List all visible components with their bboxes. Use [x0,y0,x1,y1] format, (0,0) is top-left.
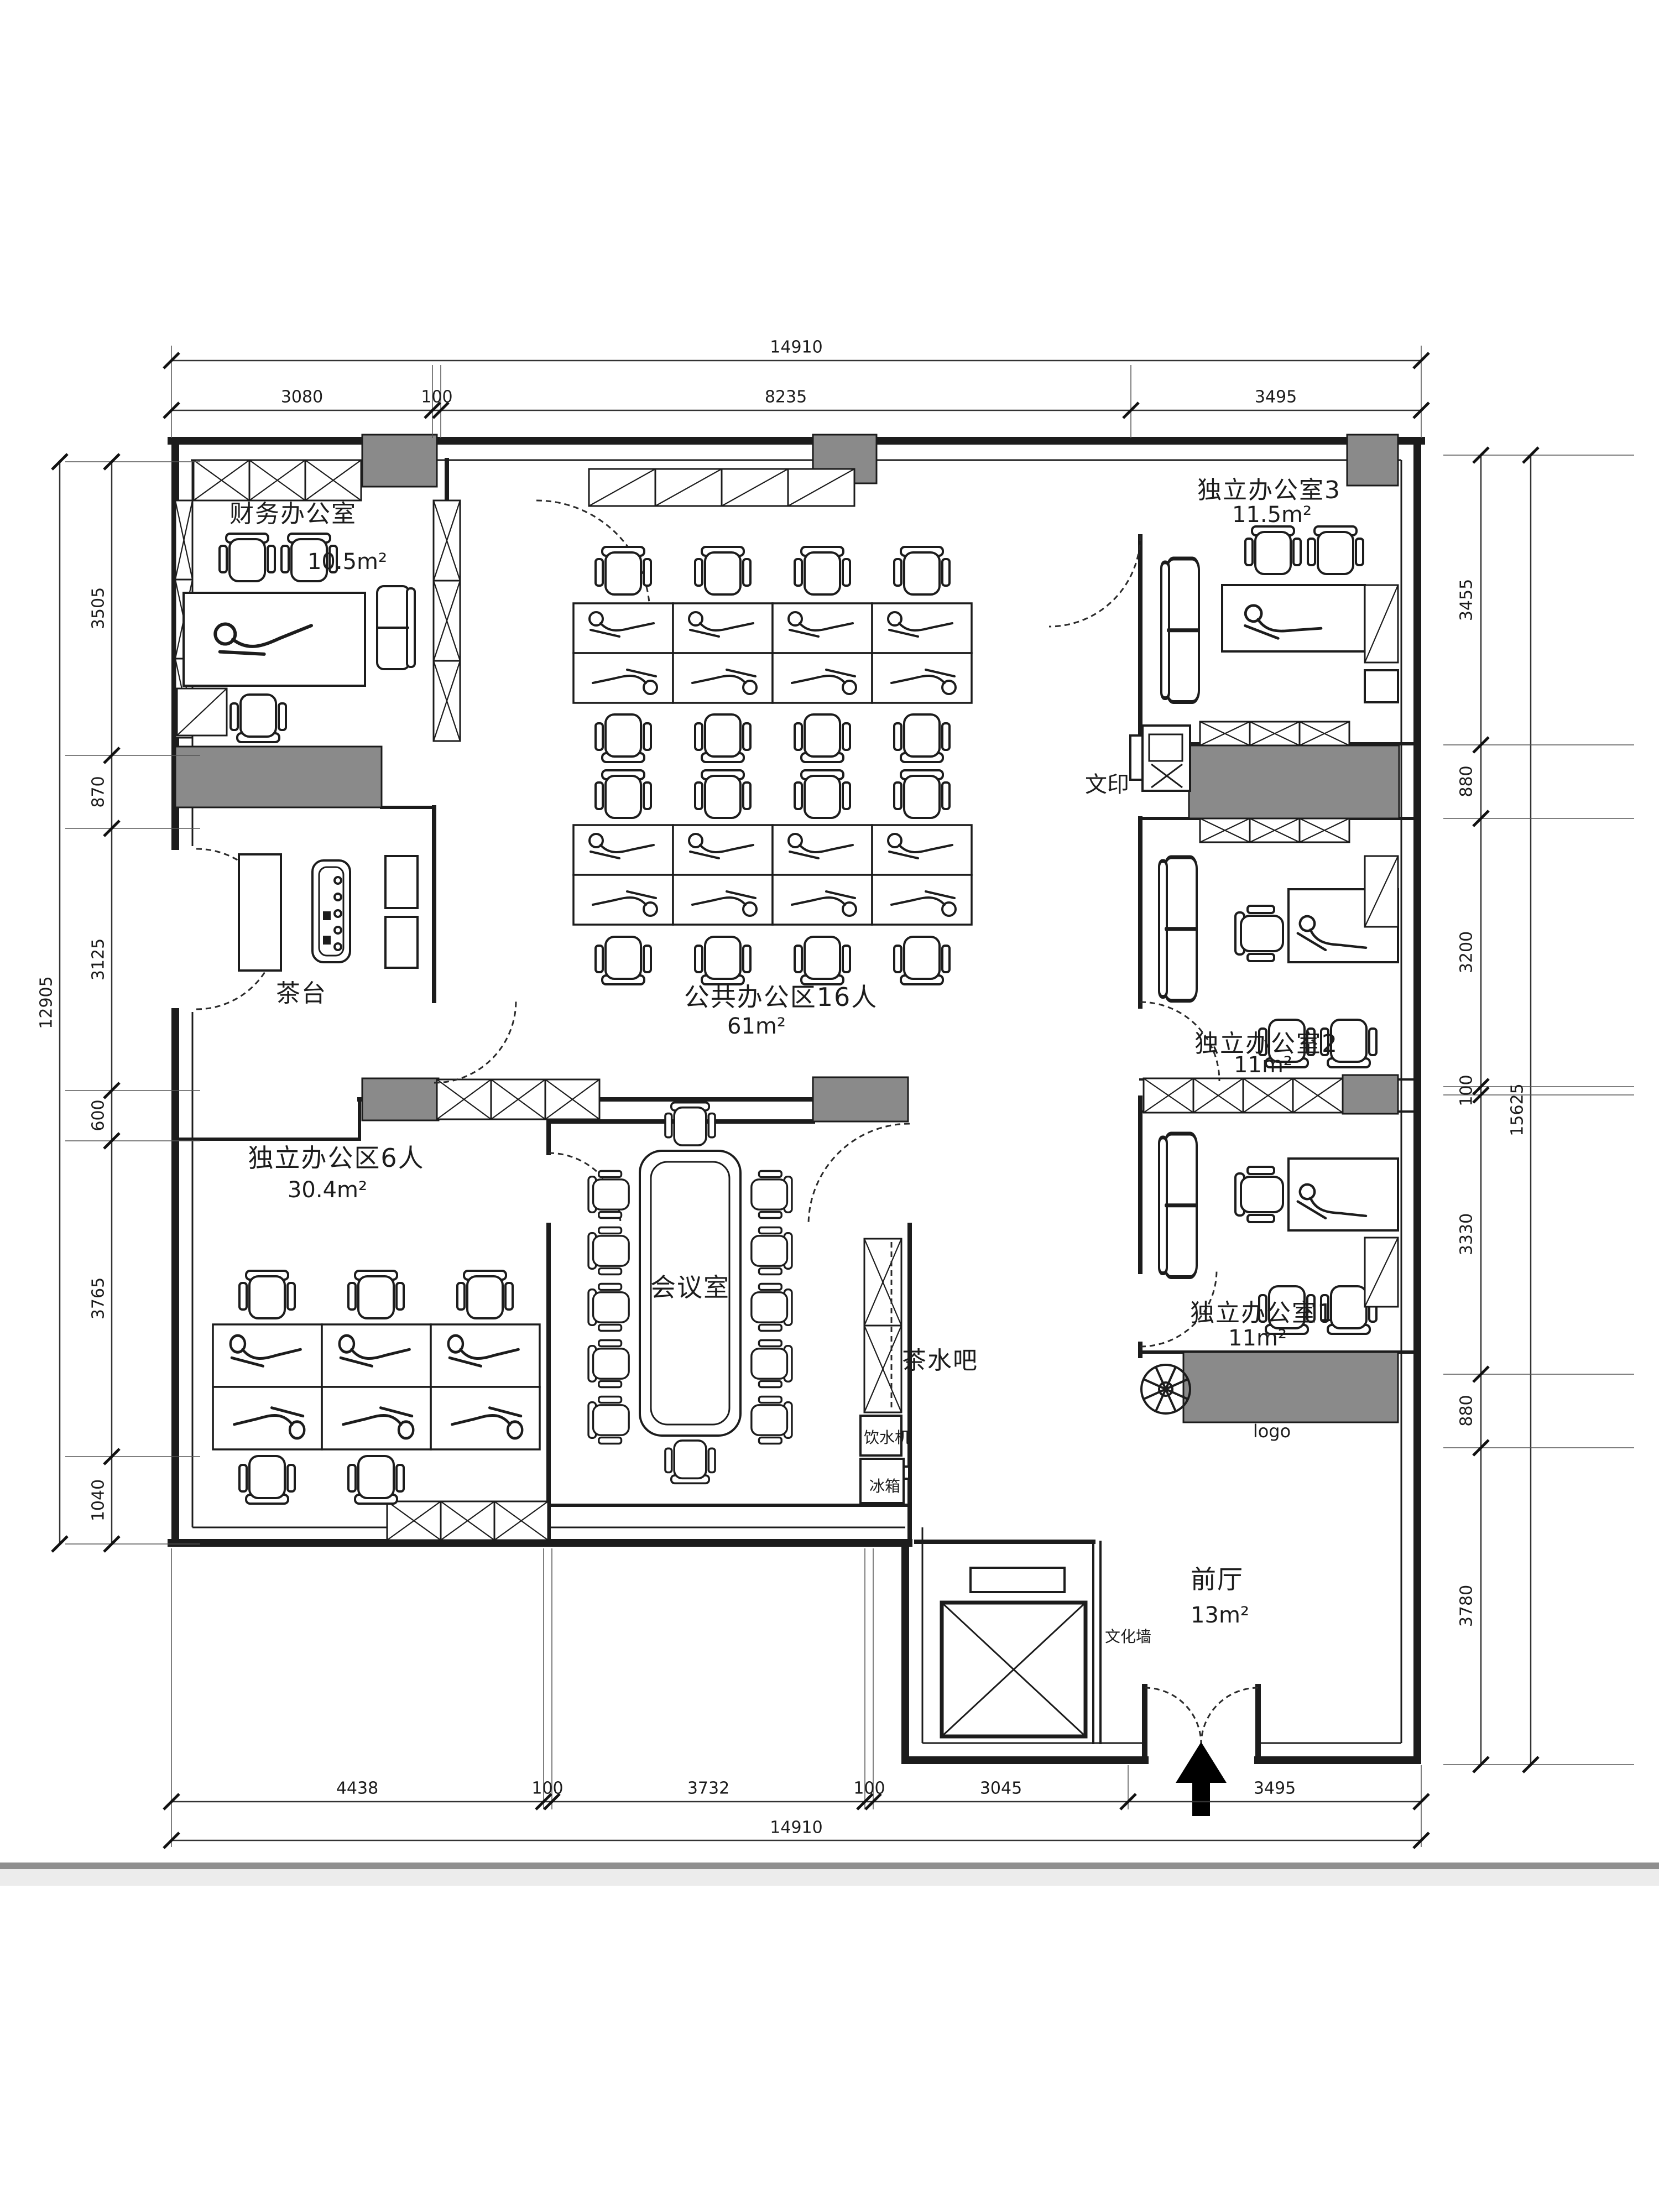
sofa-icon [377,586,415,669]
dim-right-seg3: 100 [1457,1074,1477,1106]
dim-left-seg1: 870 [89,776,108,807]
page-edge-band [0,1863,1659,1869]
dim-top-seg0: 3080 [281,388,323,407]
dim-bottom-seg0: 4438 [336,1779,378,1798]
room-label-lobby: 前厅 [1191,1559,1244,1596]
public-office-workstations [573,547,972,984]
dim-right-seg2: 3200 [1457,931,1477,973]
room-area-lobby: 13m² [1191,1603,1249,1628]
dim-top-seg3: 3495 [1255,388,1297,407]
dim-right-seg1: 880 [1457,765,1477,797]
sofa-icon [1159,1134,1197,1277]
room-area-office2: 11m² [1234,1052,1292,1078]
dim-bottom-total: 14910 [770,1818,822,1838]
logo-wall [1183,1352,1398,1422]
dim-top-total: 14910 [770,338,822,357]
cabinet-icon [1365,856,1398,927]
label-water-dispenser: 饮水机 [864,1426,910,1448]
entrance-arrow-icon [1176,1742,1227,1816]
elevator-shaft [942,1568,1086,1736]
page-margin-band [0,1869,1659,1886]
office-chair-icon [1235,906,1283,961]
room-label-office3: 独立办公室3 [1197,470,1341,505]
label-tea-table: 茶台 [276,973,327,1009]
dim-left-seg4: 3765 [89,1277,108,1319]
label-logo: logo [1253,1421,1291,1442]
dim-right-seg6: 3780 [1457,1585,1477,1627]
dim-right-seg5: 880 [1457,1395,1477,1426]
dim-bottom-seg3: 100 [853,1779,885,1798]
floor-plan-sheet: 财务办公室 10.5m² 独立办公室3 11.5m² 公共办公区16人 61m²… [0,0,1659,2212]
dim-right-seg0: 3455 [1457,579,1477,621]
elevator-door-icon [971,1568,1065,1592]
dim-left-seg0: 3505 [89,587,108,629]
room-area-public: 61m² [727,1014,786,1039]
dim-top-seg2: 8235 [765,388,807,407]
dim-bottom-seg4: 3045 [980,1779,1022,1798]
tea-table-area [239,854,418,971]
desk-icon [1288,1159,1398,1230]
label-fridge: 冰箱 [869,1474,900,1496]
room-area-office1: 11m² [1228,1326,1287,1351]
dim-right-total: 15625 [1508,1083,1527,1136]
dim-left-total: 12905 [37,976,56,1029]
dim-top-seg1: 100 [421,388,452,407]
cabinet-icon [1365,1238,1398,1307]
room-label-finance: 财务办公室 [229,494,357,529]
chair-icon [220,534,275,581]
dim-right-seg4: 3330 [1457,1213,1477,1255]
dim-bottom-seg5: 3495 [1254,1779,1296,1798]
room-label-public: 公共办公区16人 [684,977,878,1014]
label-print: 文印 [1085,766,1129,799]
label-tea-bar: 茶水吧 [902,1340,978,1376]
dim-left-seg5: 1040 [89,1479,108,1521]
sofa-icon [1161,559,1199,702]
tea-table-icon [312,860,350,962]
room-label-office1: 独立办公室1 [1190,1293,1334,1328]
room-area-office3: 11.5m² [1232,502,1312,528]
private-zone-6-furniture [213,1271,540,1504]
dim-bottom-seg1: 100 [531,1779,563,1798]
room-label-zone6: 独立办公区6人 [248,1138,424,1175]
sofa-icon [1159,857,1197,1001]
private-office-3-furniture [1161,526,1398,702]
dim-bottom-seg2: 3732 [687,1779,729,1798]
label-culture-wall: 文化墙 [1105,1625,1151,1647]
cabinet-icon [177,688,227,735]
room-label-meeting: 会议室 [650,1267,730,1304]
print-area [1130,726,1190,791]
desk-icon [1222,585,1365,651]
dim-left-seg3: 600 [89,1099,108,1131]
room-area-finance: 10.5m² [307,549,387,575]
dim-left-seg2: 3125 [89,938,108,980]
cabinet-icon [1365,585,1398,662]
office-chair-icon [1235,1167,1283,1222]
room-area-zone6: 30.4m² [288,1177,367,1203]
office-chair-icon [231,695,286,742]
